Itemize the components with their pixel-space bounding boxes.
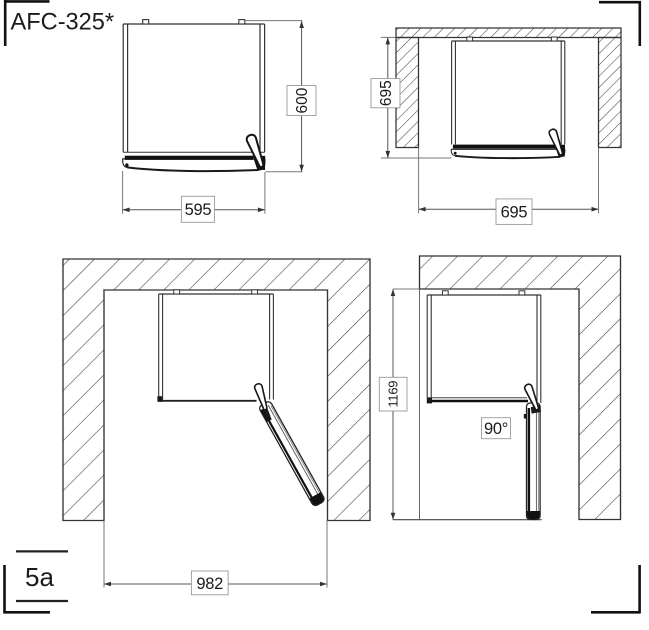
- svg-text:982: 982: [196, 575, 223, 593]
- svg-text:AFC-325*: AFC-325*: [11, 10, 115, 36]
- svg-text:600: 600: [294, 87, 311, 113]
- svg-text:695: 695: [378, 80, 395, 106]
- svg-text:5a: 5a: [25, 562, 54, 592]
- svg-text:595: 595: [185, 201, 212, 219]
- svg-text:695: 695: [501, 204, 528, 222]
- svg-text:90°: 90°: [484, 420, 508, 438]
- svg-text:1169: 1169: [386, 381, 401, 408]
